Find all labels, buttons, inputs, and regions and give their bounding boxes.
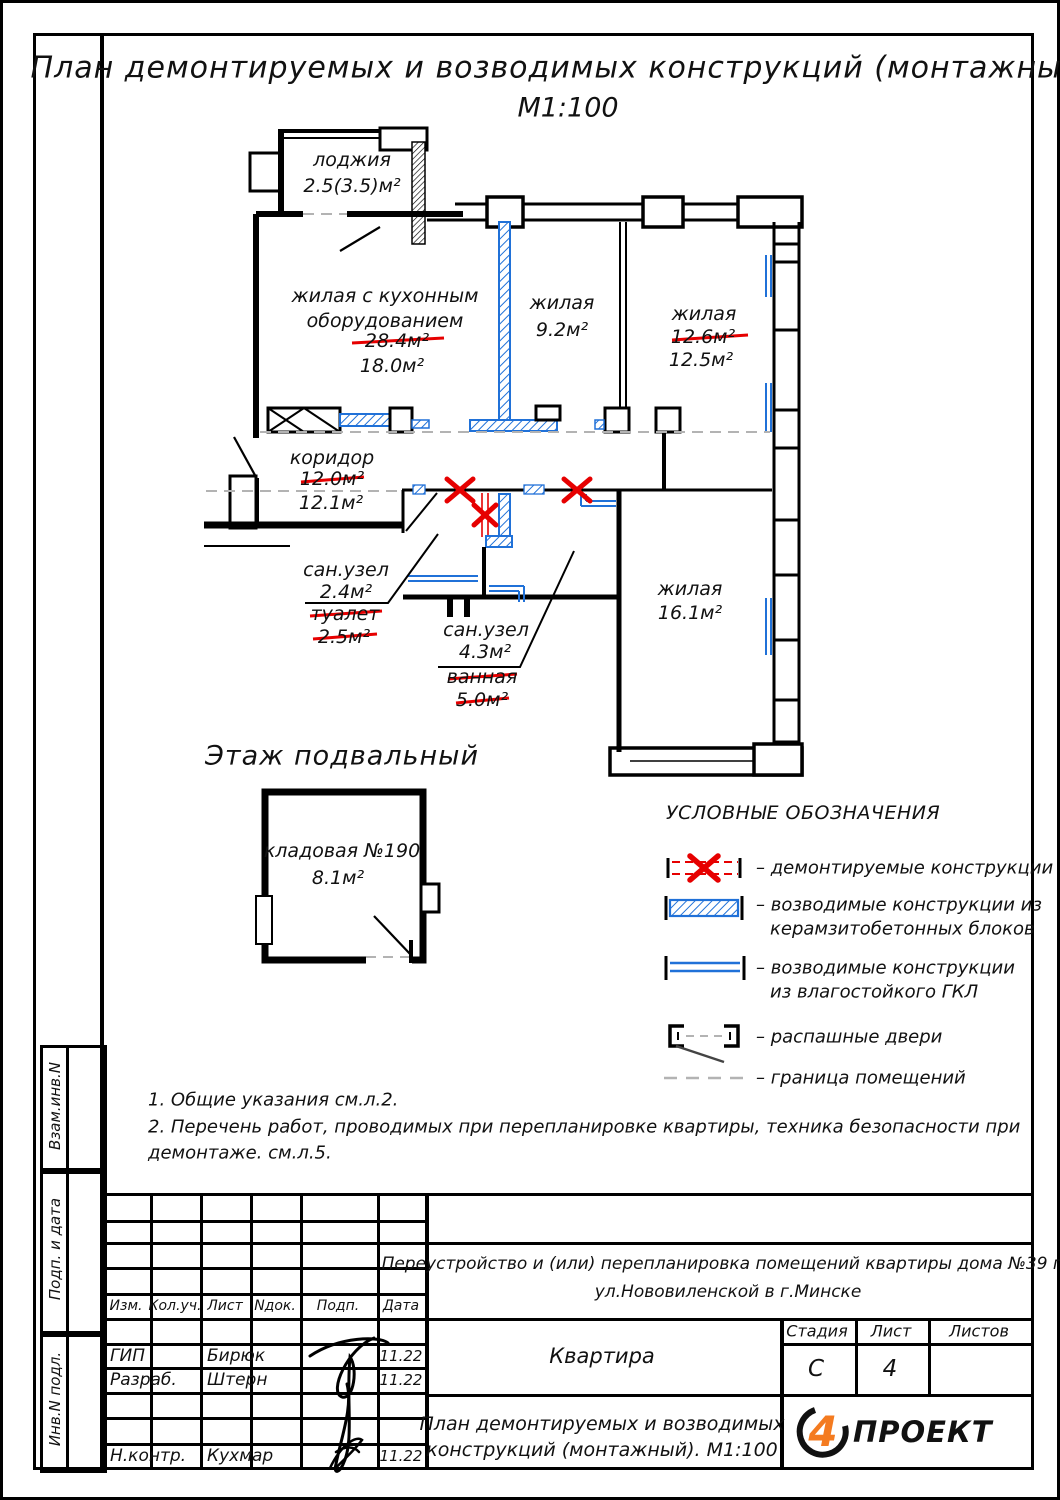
room-old-area-bath-big: 5.0м² bbox=[456, 689, 508, 711]
room-area-living9: 9.2м² bbox=[536, 319, 588, 341]
tb-col-koluch: Кол.уч. bbox=[149, 1298, 202, 1314]
side-label-inv: Инв.N подл. bbox=[46, 1352, 64, 1446]
tb-date-razrab: 11.22 bbox=[380, 1371, 423, 1389]
note-2: 2. Перечень работ, проводимых при перепл… bbox=[148, 1117, 1020, 1138]
legend-demolition-icon bbox=[668, 856, 740, 880]
tb-sheets-label: Листов bbox=[949, 1322, 1009, 1341]
demolition-x-icons bbox=[447, 479, 590, 525]
tb-line bbox=[66, 1168, 69, 1331]
tb-line bbox=[425, 1318, 1031, 1321]
tb-role-nkontr: Н.контр. bbox=[110, 1446, 186, 1466]
tb-col-izm: Изм. bbox=[110, 1298, 143, 1314]
drawing-sheet: План демонтируемых и возводимых конструк… bbox=[0, 0, 1060, 1500]
tb-line bbox=[855, 1318, 858, 1397]
tb-stage-value: С bbox=[808, 1356, 824, 1382]
side-label-podp: Подп. и дата bbox=[46, 1198, 64, 1300]
tb-sheet-label: Лист bbox=[871, 1322, 912, 1341]
tb-doc-title-line2: конструкций (монтажный). М1:100 bbox=[426, 1439, 778, 1461]
legend-item-boundary: – граница помещений bbox=[756, 1068, 966, 1089]
logo-text: ПРОЕКТ bbox=[853, 1415, 992, 1449]
room-label-bath-small: сан.узел bbox=[303, 559, 389, 581]
note-2-cont: демонтаже. см.л.5. bbox=[148, 1143, 332, 1164]
tb-project-line1: Переустройство и (или) перепланировка по… bbox=[382, 1254, 1060, 1274]
room-area-bath-big: 4.3м² bbox=[459, 641, 511, 663]
legend-keramzit-icon bbox=[666, 896, 742, 920]
svg-text:4: 4 bbox=[807, 1407, 837, 1456]
company-logo: 4 ПРОЕКТ bbox=[795, 1404, 1020, 1460]
tb-line bbox=[425, 1394, 1031, 1397]
room-label-living-kitchen-2: оборудованием bbox=[307, 310, 464, 332]
room-area-new-corridor: 12.1м² bbox=[299, 492, 363, 514]
room-label-living16: жилая bbox=[658, 578, 723, 600]
room-area-old-living12: 12.6м² bbox=[671, 326, 735, 348]
legend-item-keramzit-2: керамзитобетонных блоков bbox=[770, 919, 1035, 940]
room-area-storeroom: 8.1м² bbox=[312, 867, 364, 889]
page-scale: М1:100 bbox=[517, 93, 618, 124]
legend-item-gkl-2: из влагостойкого ГКЛ bbox=[770, 982, 978, 1003]
room-old-area-bath-small: 2.5м² bbox=[318, 626, 370, 648]
legend-item-doors: – распашные двери bbox=[756, 1027, 942, 1048]
tb-name-nkontr: Кухмар bbox=[207, 1446, 273, 1466]
tb-project-line2: ул.Нововиленской в г.Минске bbox=[595, 1282, 862, 1302]
tb-col-data: Дата bbox=[383, 1298, 419, 1314]
room-label-living-kitchen-1: жилая с кухонным bbox=[292, 285, 479, 307]
gkl-wall-strips bbox=[766, 255, 771, 655]
room-old-name-bath-small: туалет bbox=[311, 603, 380, 625]
room-area-living16: 16.1м² bbox=[658, 602, 722, 624]
room-area-old-corridor: 12.0м² bbox=[300, 468, 364, 490]
tb-line bbox=[425, 1242, 1031, 1245]
tb-name-gip: Бирюк bbox=[207, 1346, 265, 1366]
room-label-bath-big: сан.узел bbox=[443, 619, 529, 641]
floor-plan-drawing bbox=[0, 0, 1060, 1500]
tb-stage-label: Стадия bbox=[786, 1322, 847, 1341]
tb-line bbox=[780, 1343, 1031, 1346]
tb-col-podp: Подп. bbox=[317, 1298, 359, 1314]
room-label-living12: жилая bbox=[672, 303, 737, 325]
side-label-vzam: Взам.инв.N bbox=[46, 1062, 64, 1150]
tb-role-razrab: Разраб. bbox=[110, 1370, 177, 1390]
legend-item-demolition: – демонтируемые конструкции bbox=[756, 858, 1053, 879]
tb-sheet-value: 4 bbox=[883, 1356, 898, 1382]
tb-date-gip: 11.22 bbox=[380, 1347, 423, 1365]
room-area-old-living-kitchen: 28.4м² bbox=[365, 330, 429, 352]
tb-col-list: Лист bbox=[207, 1298, 242, 1314]
tb-line bbox=[300, 1193, 303, 1467]
room-label-living9: жилая bbox=[530, 292, 595, 314]
tb-line bbox=[66, 1331, 69, 1467]
page-title: План демонтируемых и возводимых конструк… bbox=[31, 51, 1060, 86]
room-old-name-bath-big: ванная bbox=[447, 666, 518, 688]
room-label-loggia: лоджия bbox=[313, 149, 391, 171]
room-area-new-living12: 12.5м² bbox=[669, 349, 733, 371]
note-1: 1. Общие указания см.л.2. bbox=[148, 1090, 398, 1111]
tb-line bbox=[780, 1318, 784, 1467]
tb-date-nkontr: 11.22 bbox=[380, 1447, 423, 1465]
tb-line bbox=[928, 1318, 931, 1397]
tb-col-ndok: Nдок. bbox=[254, 1298, 296, 1314]
legend-item-keramzit-1: – возводимые конструкции из bbox=[756, 895, 1042, 916]
tb-line bbox=[250, 1193, 253, 1467]
tb-line bbox=[200, 1193, 203, 1467]
legend-title: УСЛОВНЫЕ ОБОЗНАЧЕНИЯ bbox=[666, 802, 940, 824]
tb-doc-title-line1: План демонтируемых и возводимых bbox=[420, 1413, 785, 1435]
tb-role-gip: ГИП bbox=[110, 1346, 145, 1366]
legend-gkl-icon bbox=[666, 956, 744, 980]
room-label-corridor: коридор bbox=[290, 447, 374, 469]
tb-object-name: Квартира bbox=[549, 1344, 655, 1368]
logo-mark-icon: 4 bbox=[795, 1404, 851, 1460]
tb-line bbox=[377, 1193, 380, 1467]
titleblock-top-line bbox=[103, 1193, 1031, 1196]
room-area-bath-small: 2.4м² bbox=[320, 581, 372, 603]
room-area-new-living-kitchen: 18.0м² bbox=[360, 355, 424, 377]
legend-item-gkl-1: – возводимые конструкции bbox=[756, 958, 1015, 979]
tb-line bbox=[150, 1193, 153, 1467]
room-area-loggia: 2.5(3.5)м² bbox=[303, 175, 400, 197]
legend-door-icon bbox=[670, 1026, 738, 1062]
tb-name-razrab: Штерн bbox=[207, 1370, 267, 1390]
tb-line bbox=[66, 1045, 69, 1168]
room-label-storeroom: кладовая №190 bbox=[264, 840, 420, 862]
basement-title: Этаж подвальный bbox=[205, 741, 479, 772]
